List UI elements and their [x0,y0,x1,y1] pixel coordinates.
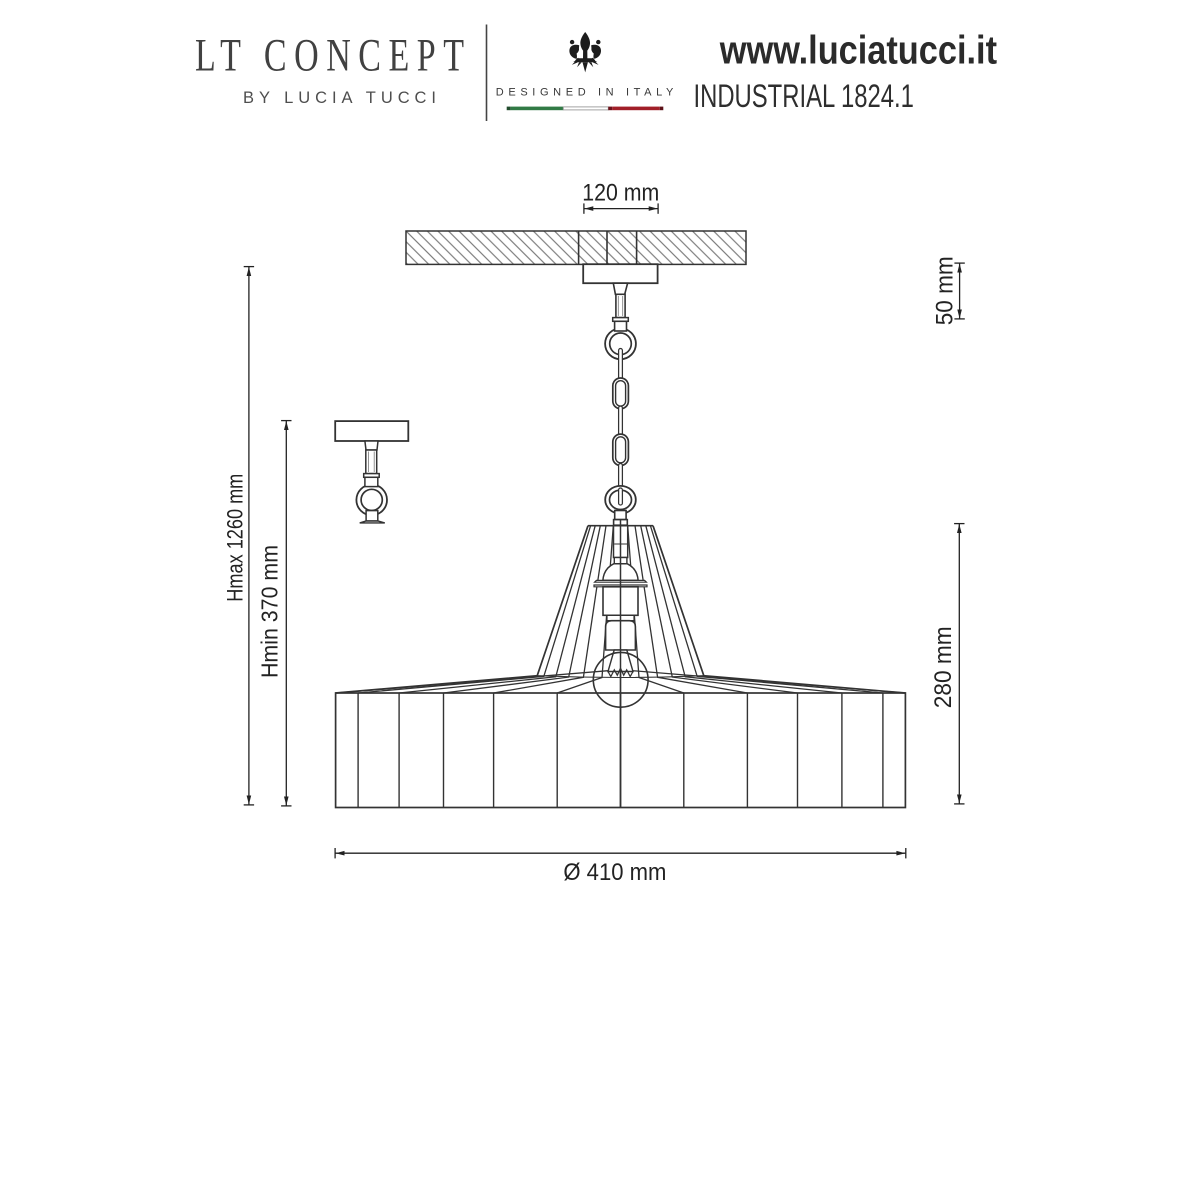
svg-text:Hmax 1260 mm: Hmax 1260 mm [222,474,247,602]
svg-text:120 mm: 120 mm [582,180,659,207]
svg-text:INDUSTRIAL 1824.1: INDUSTRIAL 1824.1 [694,78,914,114]
svg-text:DESIGNED IN ITALY: DESIGNED IN ITALY [496,87,674,99]
svg-text:LT CONCEPT: LT CONCEPT [195,29,464,80]
svg-text:280 mm: 280 mm [930,626,957,708]
svg-text:50 mm: 50 mm [931,256,958,325]
svg-text:www.luciatucci.it: www.luciatucci.it [719,29,997,73]
svg-text:Ø 410 mm: Ø 410 mm [563,859,666,886]
svg-text:Hmin 370 mm: Hmin 370 mm [257,545,283,678]
